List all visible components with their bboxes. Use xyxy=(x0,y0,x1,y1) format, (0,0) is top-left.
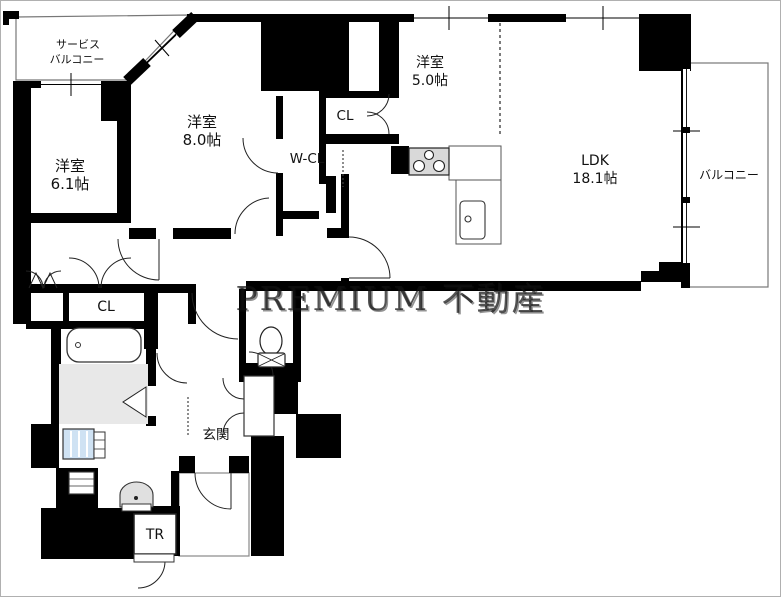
label-bedroom-80-name: 洋室 xyxy=(187,113,217,131)
window xyxy=(566,6,639,30)
stove-burner xyxy=(425,151,434,160)
label-closet-lower: CL xyxy=(97,299,115,315)
door-arc xyxy=(101,258,131,288)
label-ldk-size: 18.1帖 xyxy=(572,171,617,187)
floor-plan-image: サービス バルコニー 洋室 6.1帖 洋室 8.0帖 洋室 5.0帖 LDK 1… xyxy=(0,0,781,597)
stove-burner xyxy=(414,161,425,172)
bathtub-icon xyxy=(67,328,141,362)
kitchen-counter xyxy=(449,146,501,180)
label-bedroom-61-size: 6.1帖 xyxy=(51,175,90,193)
label-balcony: バルコニー xyxy=(699,168,759,182)
label-bedroom-61-name: 洋室 xyxy=(55,157,85,175)
label-ldk-name: LDK xyxy=(581,153,610,169)
washbasin-icon xyxy=(120,482,153,507)
label-trunk-room: TR xyxy=(145,527,165,543)
label-closet-upper: CL xyxy=(337,108,354,124)
trunk-door-sill xyxy=(134,554,174,562)
washbasin-base xyxy=(122,504,151,511)
door-arc xyxy=(138,561,165,588)
door-arc xyxy=(235,198,269,234)
door-arc xyxy=(243,138,278,173)
door-arc xyxy=(118,239,159,280)
storage-cabinet xyxy=(69,472,94,494)
sink-icon xyxy=(460,201,485,239)
entrance-porch-area xyxy=(179,473,249,556)
label-bedroom-50-size: 5.0帖 xyxy=(412,73,448,89)
label-bedroom-50-name: 洋室 xyxy=(416,54,444,71)
washbasin-drain xyxy=(134,496,138,500)
label-service-balcony-line1: サービス xyxy=(56,38,100,51)
label-bedroom-80-size: 8.0帖 xyxy=(183,131,222,149)
label-walk-in-closet: W-CL xyxy=(290,151,325,167)
watermark: PREMIUM 不動産 PREMIUM 不動産 xyxy=(235,279,548,320)
door-arc xyxy=(69,258,99,288)
window xyxy=(414,6,488,30)
label-entrance: 玄関 xyxy=(203,426,230,443)
stove-burner xyxy=(434,161,445,172)
door-arc xyxy=(349,237,390,278)
svg-text:PREMIUM 不動産: PREMIUM 不動産 xyxy=(235,279,546,318)
door-arc xyxy=(192,293,238,339)
side-shelf xyxy=(94,432,105,458)
label-service-balcony-line2: バルコニー xyxy=(50,53,105,66)
shoe-cabinet xyxy=(244,376,274,436)
toilet-icon xyxy=(260,327,282,355)
door-arc xyxy=(157,353,187,383)
floor-plan: サービス バルコニー 洋室 6.1帖 洋室 8.0帖 洋室 5.0帖 LDK 1… xyxy=(1,1,781,597)
